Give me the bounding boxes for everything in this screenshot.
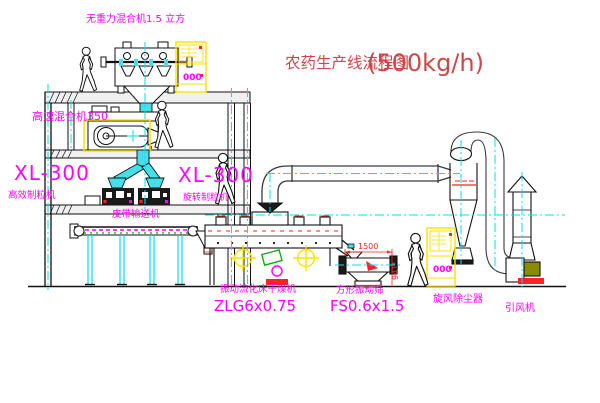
label-granulator-left-name: 高效制粒机 bbox=[8, 189, 56, 201]
page-title-capacity: (500kg/h) bbox=[367, 49, 484, 77]
person-mixer-floor bbox=[155, 101, 173, 148]
cyclone-dust-collector bbox=[450, 132, 514, 274]
label-dryer-name: 振动流化床干燥机 bbox=[220, 283, 297, 295]
pedestal bbox=[85, 196, 100, 205]
drawing-canvas: 000 bbox=[0, 0, 600, 403]
granulator-left bbox=[102, 188, 134, 205]
exhaust-duct bbox=[262, 164, 451, 203]
person-top-floor bbox=[80, 47, 97, 91]
label-sieve-name: 方形振动筛 bbox=[336, 284, 384, 296]
label-cyclone: 旋风除尘器 bbox=[433, 292, 483, 305]
induced-draft-fan bbox=[506, 258, 544, 284]
sieve-width-dim: 1500 bbox=[358, 242, 378, 251]
cabinet-2-display: 000 bbox=[433, 265, 452, 275]
belt-conveyor bbox=[70, 224, 220, 285]
label-high-speed-mixer: 高速混合机350 bbox=[32, 109, 108, 123]
label-granulator-right-name: 旋转制粒机 bbox=[183, 191, 228, 203]
control-cabinet-2 bbox=[427, 228, 455, 286]
label-top-mixer: 无重力混合机1.5 立方 bbox=[86, 12, 185, 25]
label-dryer-model: ZLG6x0.75 bbox=[214, 297, 296, 315]
granulator-right bbox=[138, 188, 170, 205]
label-granulator-right-model: XL-300 bbox=[178, 163, 254, 187]
person-ground bbox=[408, 233, 428, 286]
label-granulator-left-model: XL-300 bbox=[14, 161, 90, 185]
label-fan: 引风机 bbox=[505, 301, 535, 314]
cabinet-1-display: 000 bbox=[183, 73, 202, 83]
label-belt-conveyor: 皮带输送机 bbox=[112, 208, 160, 220]
flow-diagram: 000 bbox=[0, 0, 600, 403]
sieve-height-dim: 941 bbox=[391, 265, 400, 280]
label-sieve-model: FS0.6x1.5 bbox=[330, 297, 404, 315]
